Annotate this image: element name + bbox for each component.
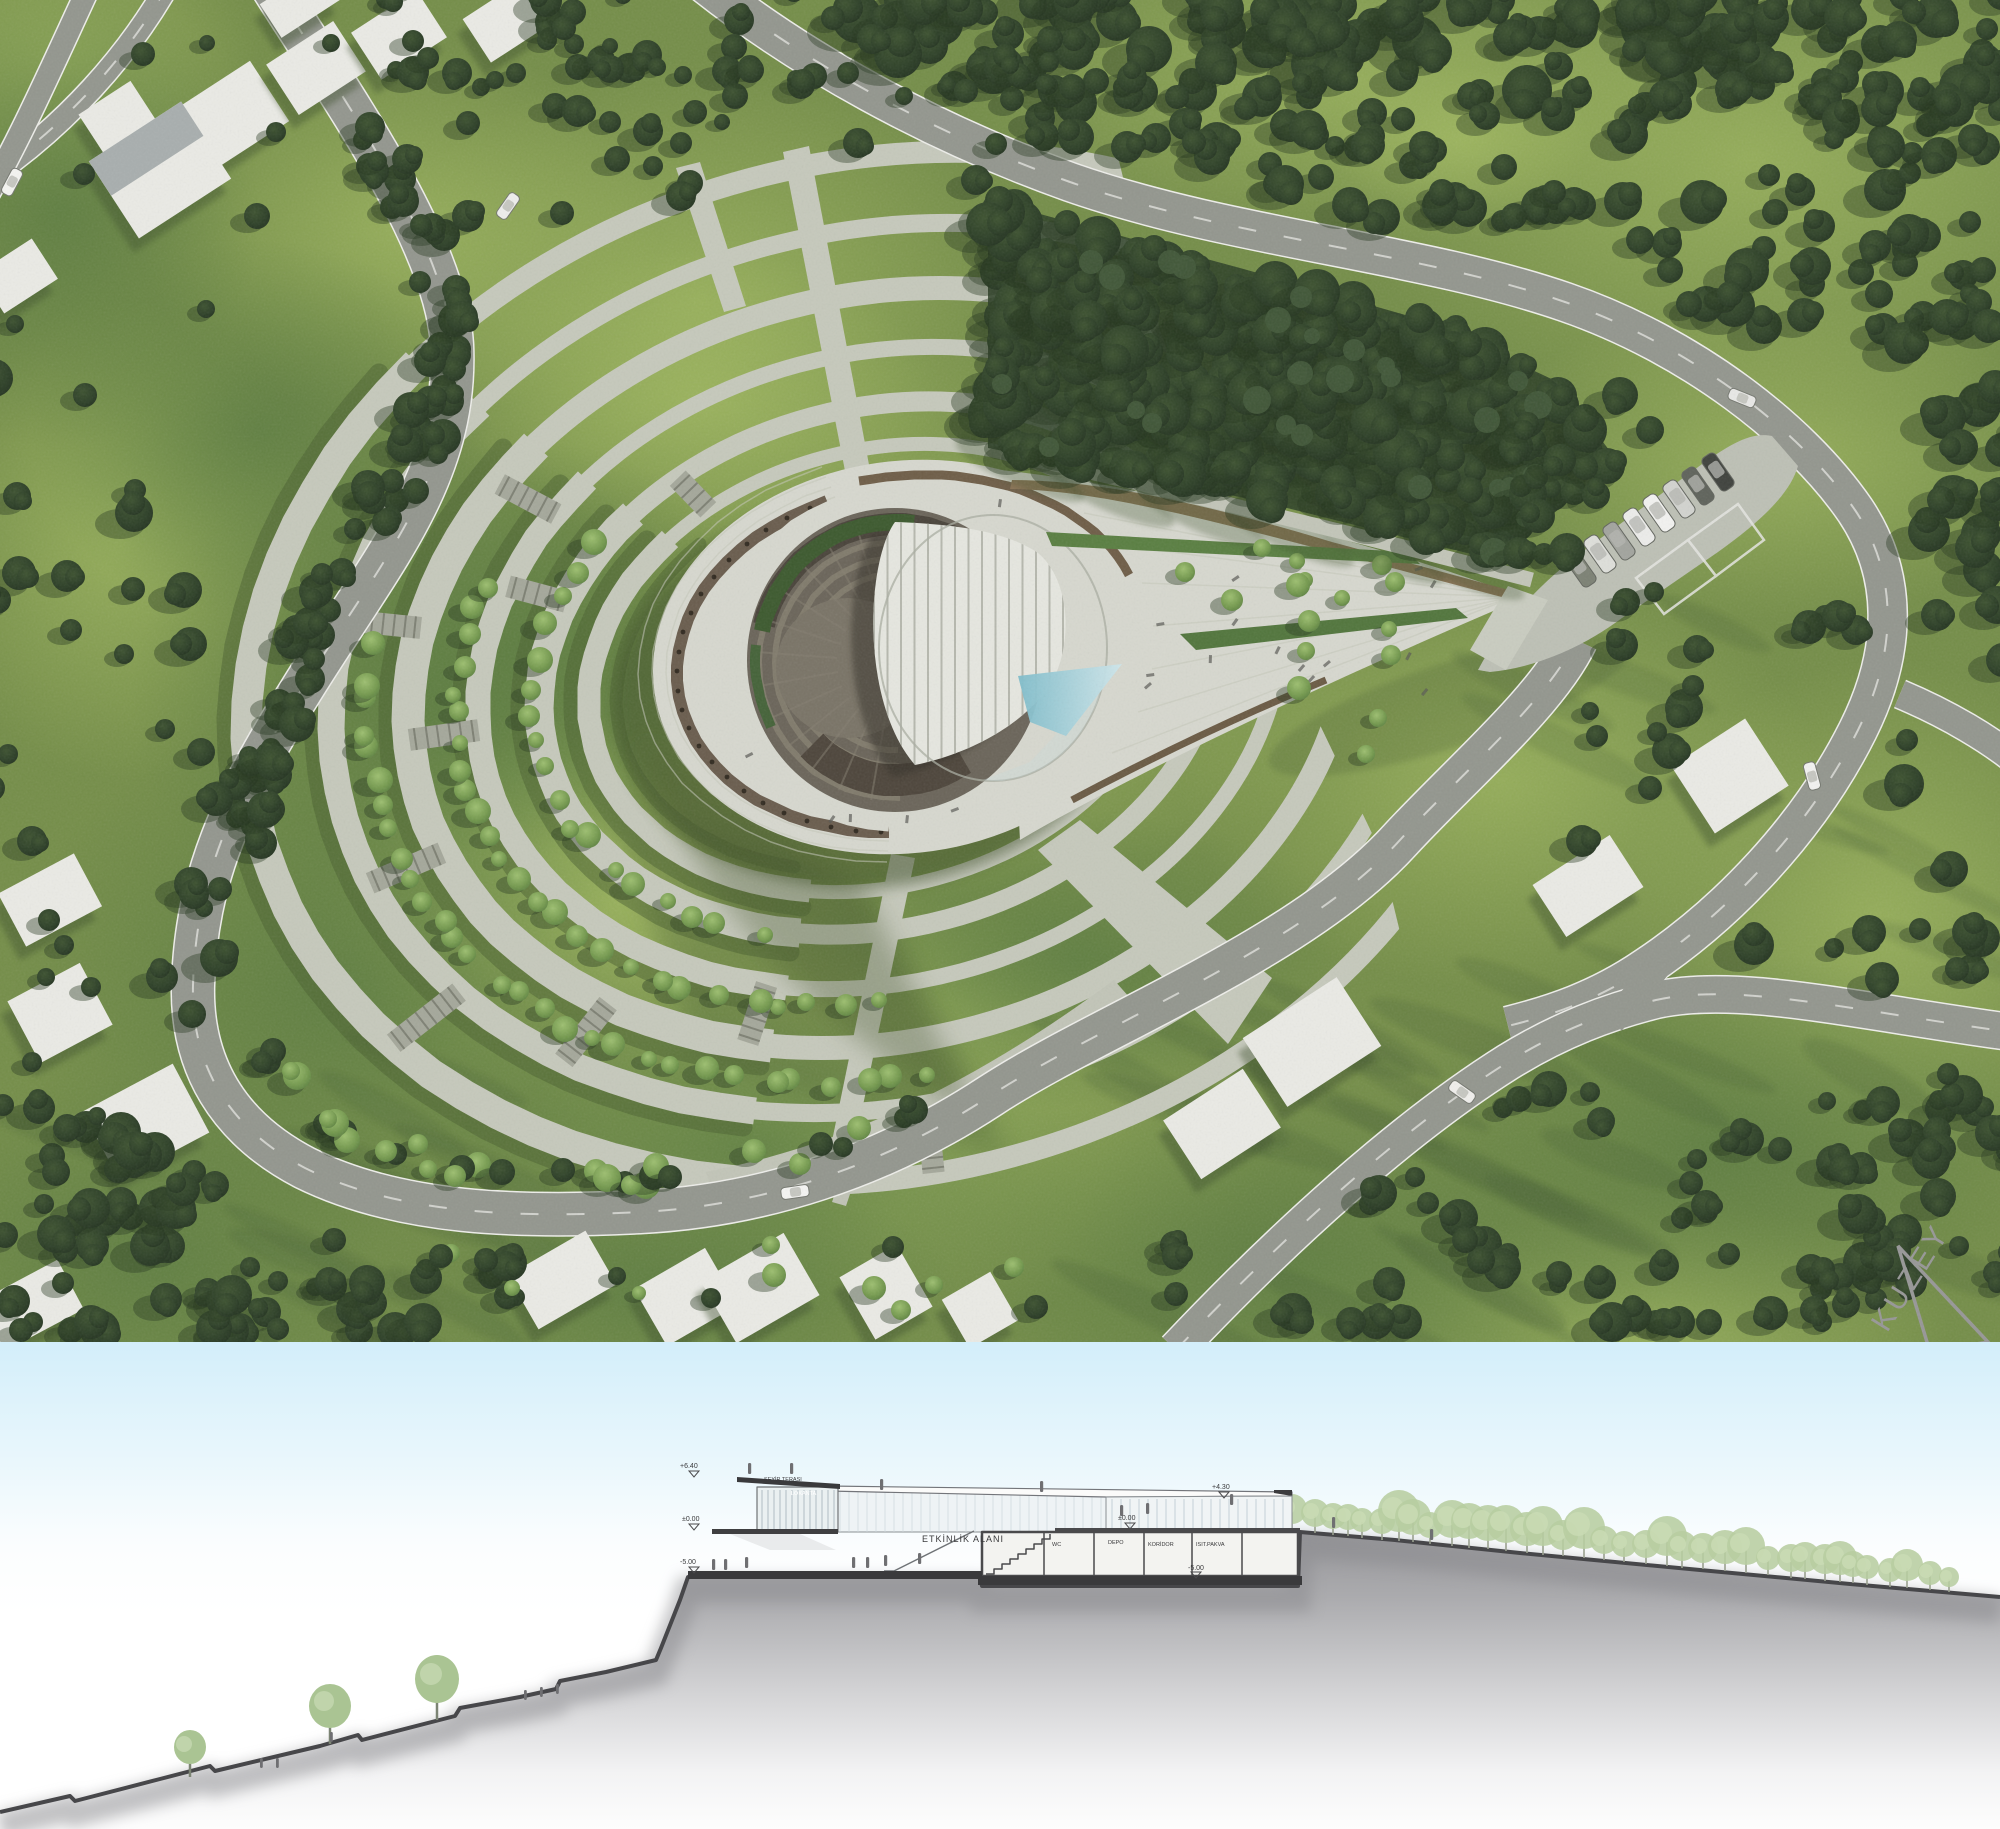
svg-text:LOKANTA: LOKANTA <box>791 1491 817 1497</box>
svg-text:ETKİNLİK ALANI: ETKİNLİK ALANI <box>922 1534 1004 1544</box>
svg-text:±0.00: ±0.00 <box>1118 1515 1136 1522</box>
svg-text:-5.00: -5.00 <box>1188 1565 1204 1572</box>
svg-text:ISIT.PAKVA: ISIT.PAKVA <box>1196 1542 1225 1548</box>
svg-text:+4.30: +4.30 <box>1212 1484 1230 1491</box>
svg-text:KORİDOR: KORİDOR <box>1148 1541 1174 1548</box>
svg-text:WC: WC <box>1052 1542 1061 1548</box>
svg-text:±0.00: ±0.00 <box>682 1516 700 1523</box>
svg-text:SEYİR TERASI: SEYİR TERASI <box>764 1476 802 1483</box>
svg-text:DEPO: DEPO <box>1108 1540 1124 1546</box>
svg-text:+6.40: +6.40 <box>680 1463 698 1470</box>
svg-text:-5.00: -5.00 <box>680 1559 696 1566</box>
